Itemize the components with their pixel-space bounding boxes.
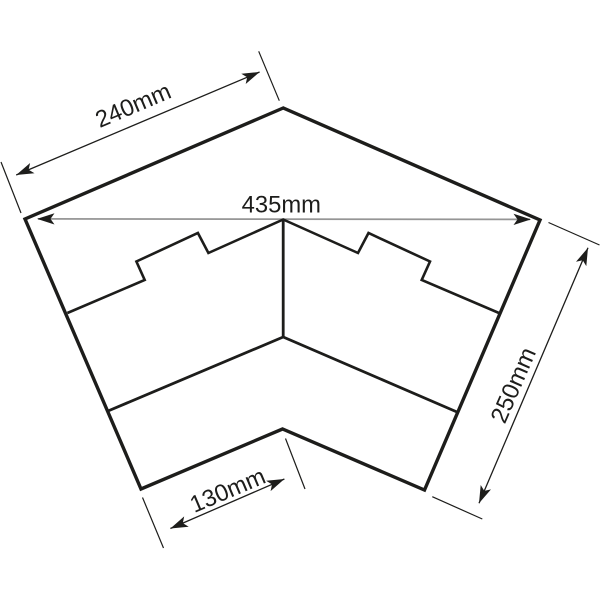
svg-text:435mm: 435mm bbox=[242, 192, 321, 219]
